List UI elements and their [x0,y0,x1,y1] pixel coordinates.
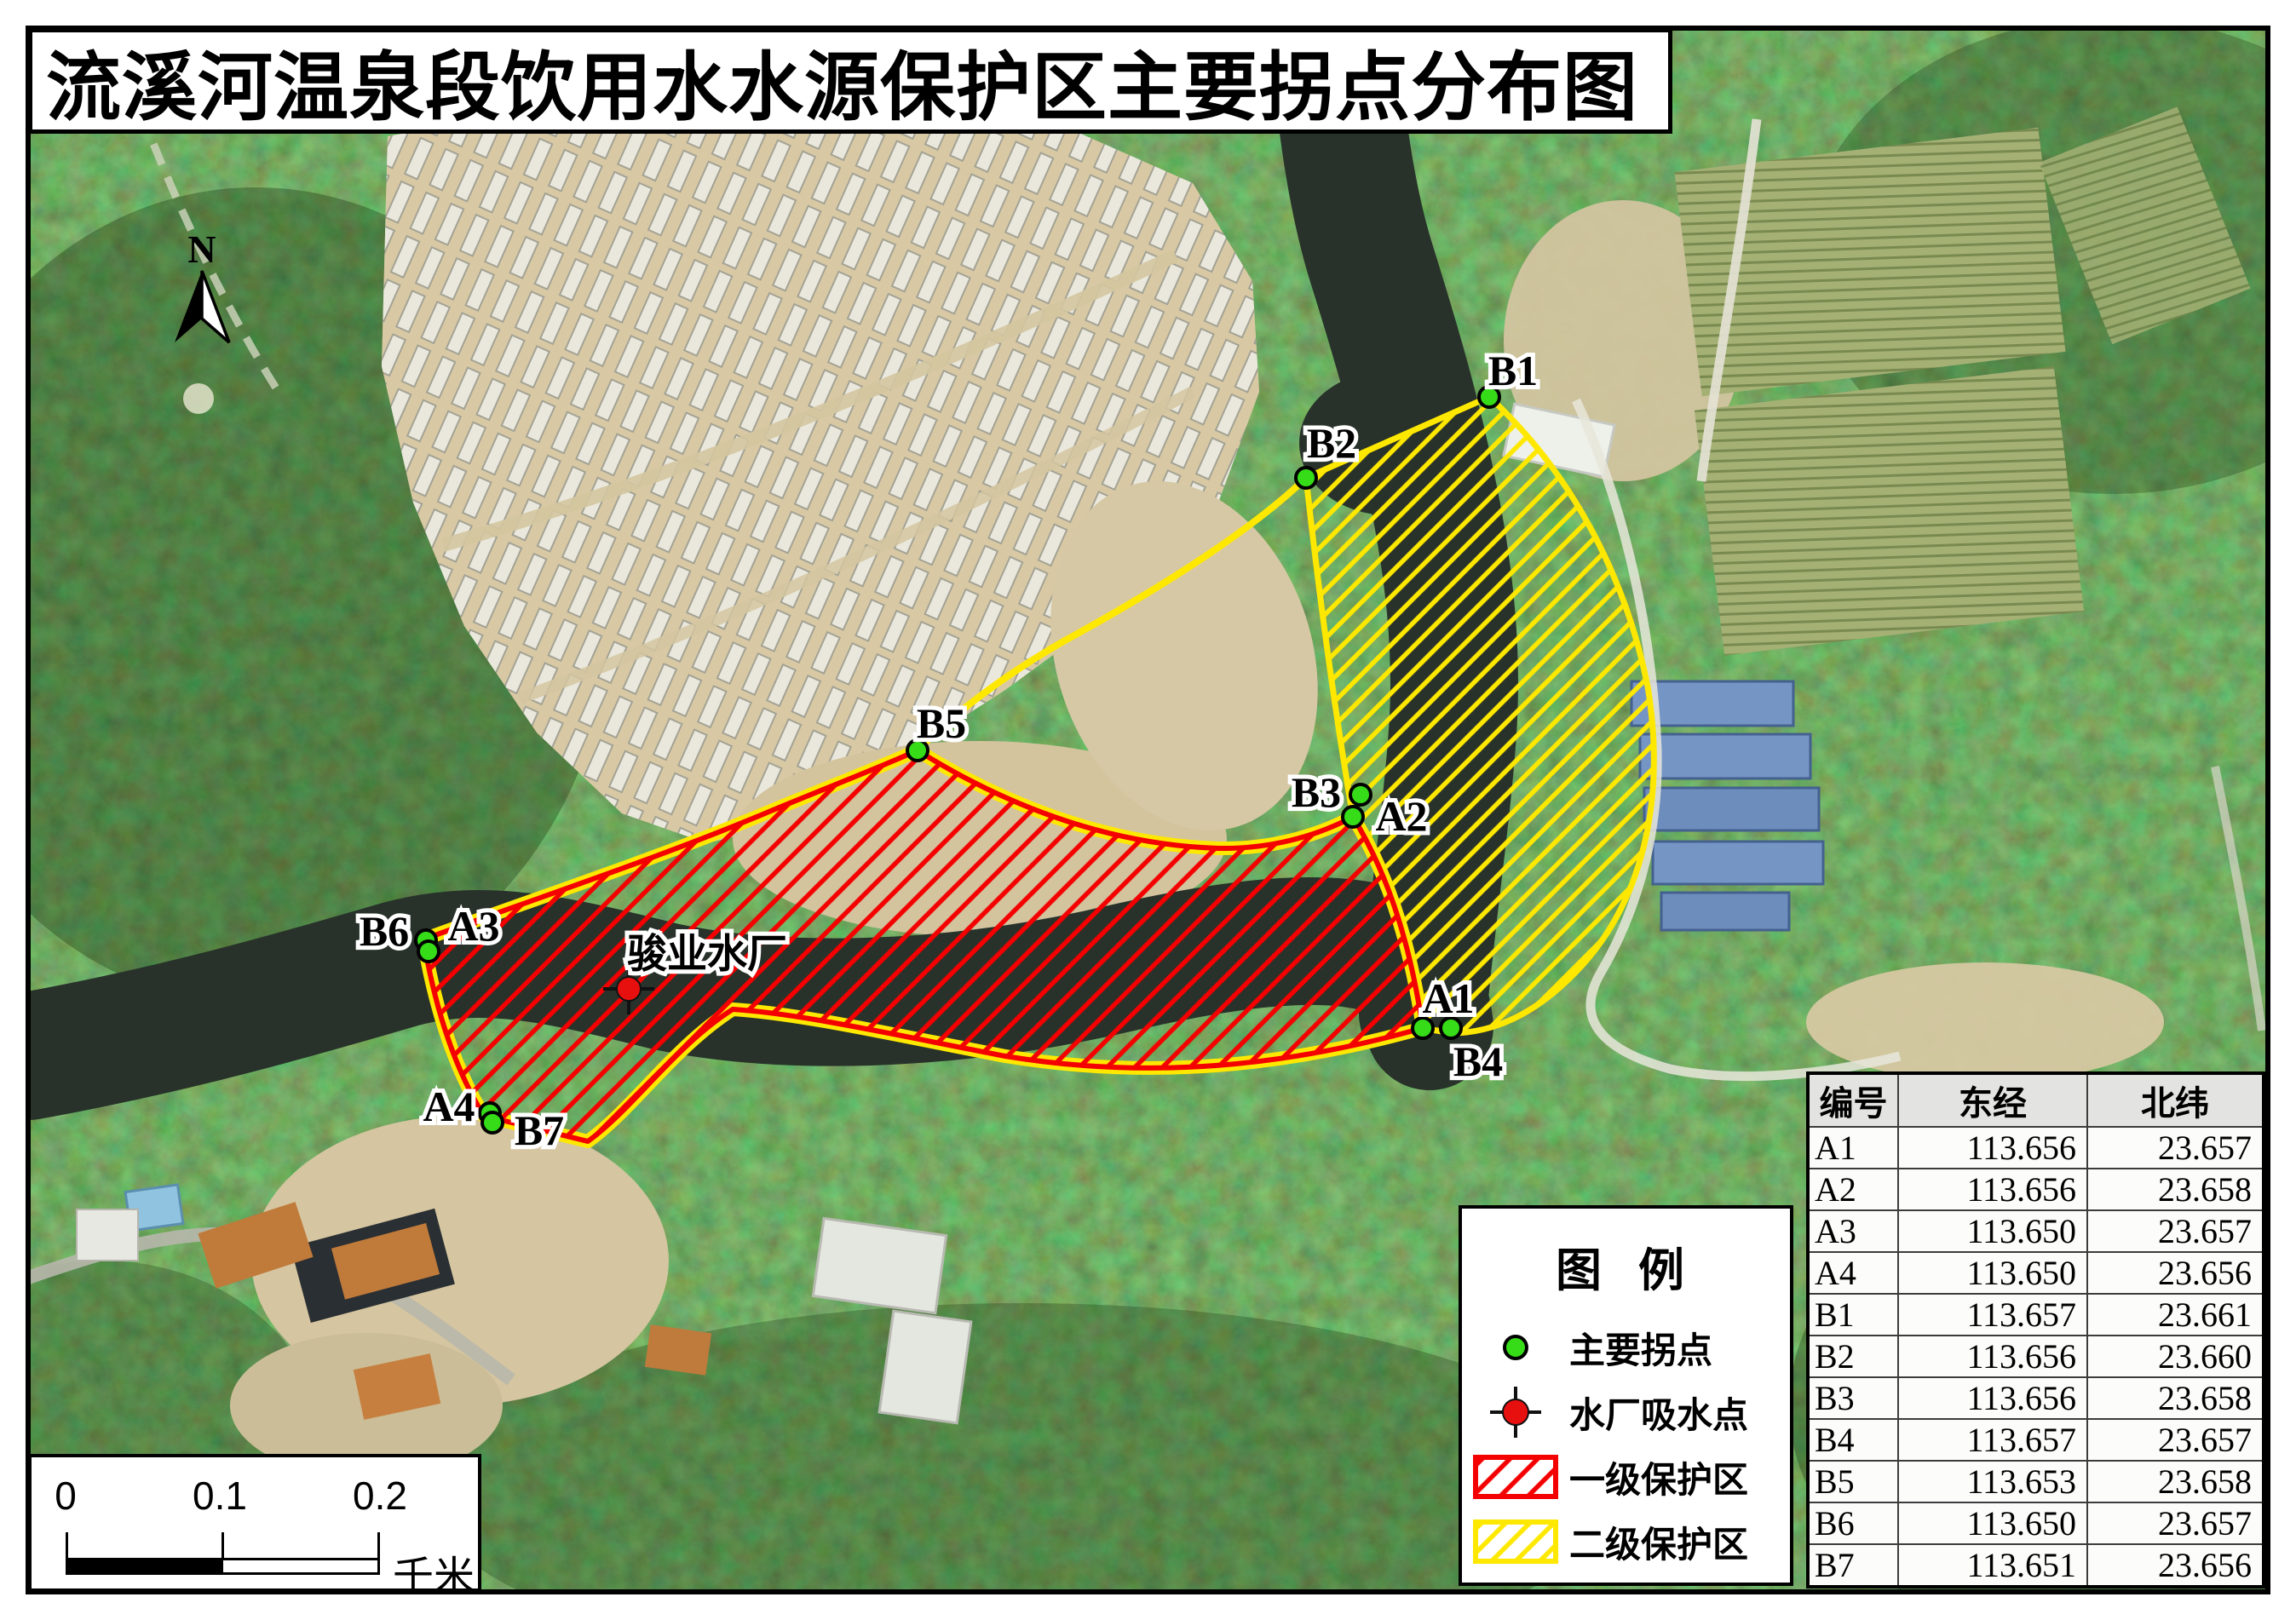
point-a3 [418,941,439,962]
scale-tick-mark [377,1532,380,1560]
legend-title: 图 例 [1462,1232,1790,1300]
scale-tick-0: 0 [55,1473,77,1519]
legend-label: 水厂吸水点 [1569,1387,1748,1439]
label-b2: B2 [1307,419,1356,467]
table-row: B2 113.656 23.660 [1808,1336,2264,1377]
coordinate-table: 编号 东经 北纬 A1 113.656 23.657 A2 113.656 23… [1806,1071,2265,1588]
label-water-plant: 骏业水厂 [627,933,787,977]
cell-id: B5 [1808,1461,1898,1502]
table-row: A1 113.656 23.657 [1808,1127,2264,1169]
cell-id: B2 [1808,1336,1898,1377]
legend: 图 例 主要拐点 水厂吸水点 [1459,1205,1793,1586]
table-row: A4 113.650 23.656 [1808,1252,2264,1294]
legend-label: 主要拐点 [1569,1322,1712,1374]
cell-id: A3 [1808,1210,1898,1252]
header-id: 编号 [1808,1073,1898,1127]
header-lon: 东经 [1898,1073,2087,1127]
legend-label: 二级保护区 [1569,1516,1748,1568]
table-row: B6 113.650 23.657 [1808,1502,2264,1544]
cell-id: B7 [1808,1544,1898,1587]
point-b3 [1350,784,1371,805]
legend-item-turn-point: 主要拐点 [1462,1315,1790,1380]
cell-lat: 23.657 [2087,1210,2264,1252]
legend-item-intake: 水厂吸水点 [1462,1380,1790,1445]
cell-id: B6 [1808,1502,1898,1544]
label-a2: A2 [1375,792,1427,840]
label-b6: B6 [360,907,409,955]
north-arrow-label: N [187,227,216,271]
map-figure: B1 B2 B3 A2 B5 A1 B4 B6 A3 A4 B7 骏业水厂 N … [0,0,2296,1620]
cell-lat: 23.657 [2087,1419,2264,1461]
legend-item-primary-zone: 一级保护区 [1462,1445,1790,1509]
table-row: B7 113.651 23.656 [1808,1544,2264,1587]
table-row: B3 113.656 23.658 [1808,1377,2264,1419]
scale-unit: 千米 [393,1542,475,1602]
legend-item-secondary-zone: 二级保护区 [1462,1509,1790,1574]
cell-lon: 113.650 [1898,1252,2087,1294]
cell-lon: 113.651 [1898,1544,2087,1587]
cell-id: B3 [1808,1377,1898,1419]
cell-lat: 23.658 [2087,1461,2264,1502]
cell-lon: 113.656 [1898,1336,2087,1377]
map-title-box: 流溪河温泉段饮用水水源保护区主要拐点分布图 [28,28,1672,134]
table-row: B1 113.657 23.661 [1808,1294,2264,1336]
cell-id: A2 [1808,1169,1898,1210]
cell-id: A1 [1808,1127,1898,1169]
cell-lon: 113.650 [1898,1502,2087,1544]
legend-label: 一级保护区 [1569,1451,1748,1503]
cell-lat: 23.658 [2087,1377,2264,1419]
scale-tick-mark [222,1532,224,1560]
label-b4: B4 [1453,1037,1503,1085]
table-header-row: 编号 东经 北纬 [1808,1073,2264,1127]
red-hatch-icon [1462,1455,1569,1499]
table-row: B5 113.653 23.658 [1808,1461,2264,1502]
map-title: 流溪河温泉段饮用水水源保护区主要拐点分布图 [32,27,1638,135]
cell-lon: 113.650 [1898,1210,2087,1252]
scale-tick-0-2: 0.2 [353,1473,407,1519]
label-b7: B7 [515,1106,564,1154]
label-b3: B3 [1292,768,1341,816]
cell-lat: 23.657 [2087,1127,2264,1169]
cell-lon: 113.657 [1898,1294,2087,1336]
cell-lon: 113.656 [1898,1377,2087,1419]
cell-id: B1 [1808,1294,1898,1336]
cell-lat: 23.658 [2087,1169,2264,1210]
cell-lat: 23.656 [2087,1544,2264,1587]
table-row: A2 113.656 23.658 [1808,1169,2264,1210]
label-a3: A3 [447,902,499,950]
table-row: B4 113.657 23.657 [1808,1419,2264,1461]
table-row: A3 113.650 23.657 [1808,1210,2264,1252]
cell-lon: 113.657 [1898,1419,2087,1461]
cell-lat: 23.660 [2087,1336,2264,1377]
label-b1: B1 [1488,347,1538,394]
red-intake-icon [1462,1385,1569,1439]
header-lat: 北纬 [2087,1073,2264,1127]
green-point-icon [1462,1322,1569,1373]
cell-lon: 113.656 [1898,1169,2087,1210]
scale-bar-rule [66,1558,380,1575]
label-a4: A4 [423,1083,475,1130]
scale-bar-filled-half [68,1560,223,1572]
yellow-hatch-icon [1462,1519,1569,1564]
scale-bar: 0 0.1 0.2 千米 [28,1454,481,1592]
point-b2 [1296,468,1316,488]
cell-lon: 113.653 [1898,1461,2087,1502]
point-a2 [1343,807,1363,827]
scale-tick-0-1: 0.1 [193,1473,247,1519]
cell-lat: 23.661 [2087,1294,2264,1336]
label-a1: A1 [1422,974,1474,1022]
forest-clearing [183,383,214,414]
cell-lon: 113.656 [1898,1127,2087,1169]
cell-lat: 23.656 [2087,1252,2264,1294]
scale-tick-mark [66,1532,68,1560]
cell-id: A4 [1808,1252,1898,1294]
point-b7 [482,1112,503,1133]
cell-id: B4 [1808,1419,1898,1461]
label-b5: B5 [917,699,966,747]
cell-lat: 23.657 [2087,1502,2264,1544]
